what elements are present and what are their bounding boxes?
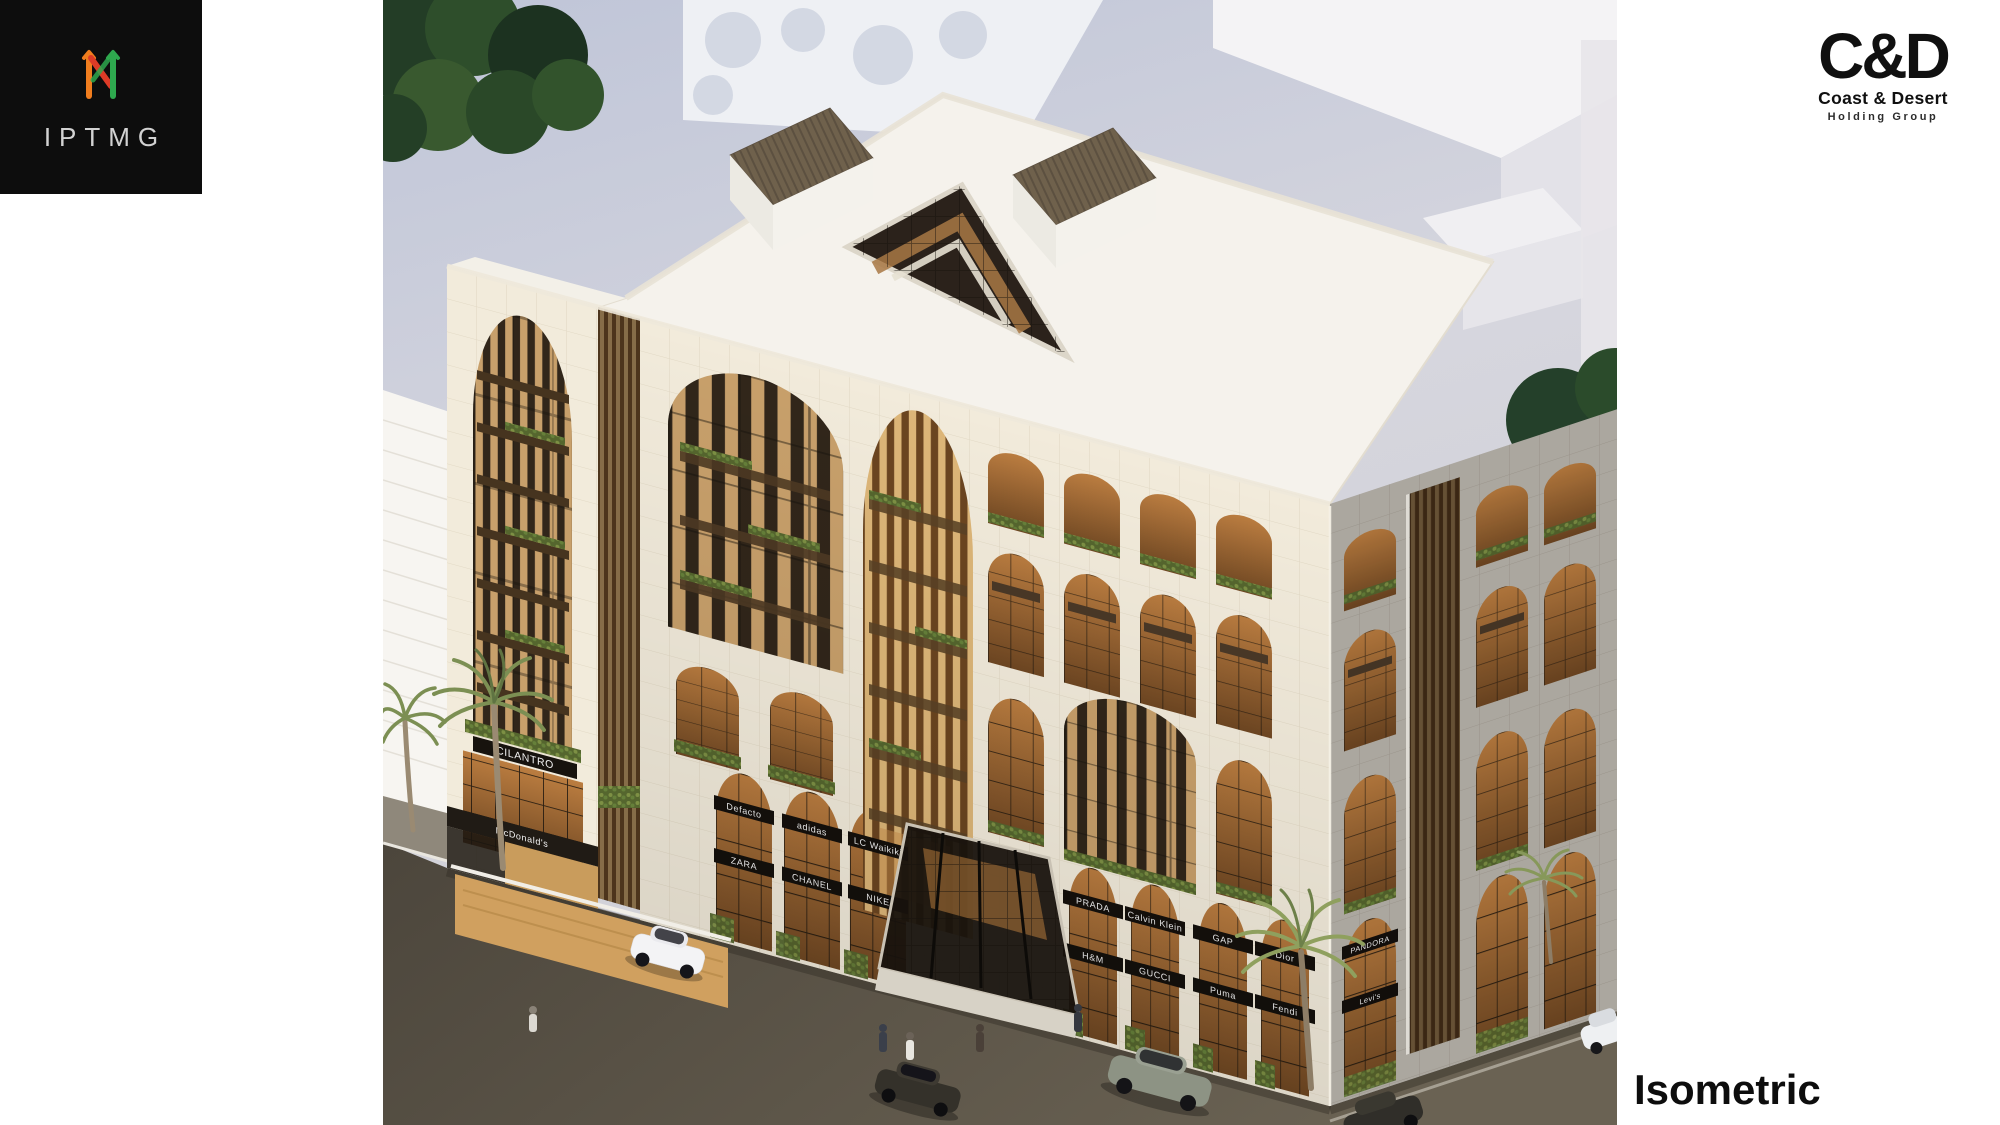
iptmg-logo-box: IPTMG [0, 0, 202, 194]
cd-subtitle: Holding Group [1798, 111, 1968, 123]
cd-name: Coast & Desert [1798, 88, 1968, 109]
presentation-slide: IPTMG C&D Coast & Desert Holding Group I… [0, 0, 2000, 1125]
iptmg-logo-text: IPTMG [0, 122, 202, 153]
tower-facade: CILANTRO McDonald's [447, 266, 598, 909]
facade-recess [598, 307, 640, 910]
isometric-building-rendering: Defacto ZARA adidas CHANEL LC Waikiki NI… [383, 0, 1617, 1125]
coast-desert-logo: C&D Coast & Desert Holding Group [1798, 24, 1968, 123]
iptmg-logo-icon [80, 42, 122, 106]
cd-initials: C&D [1798, 24, 1968, 88]
side-facade: PANDORA Levi's [1330, 409, 1617, 1106]
slide-caption: Isometric [1634, 1066, 1821, 1114]
